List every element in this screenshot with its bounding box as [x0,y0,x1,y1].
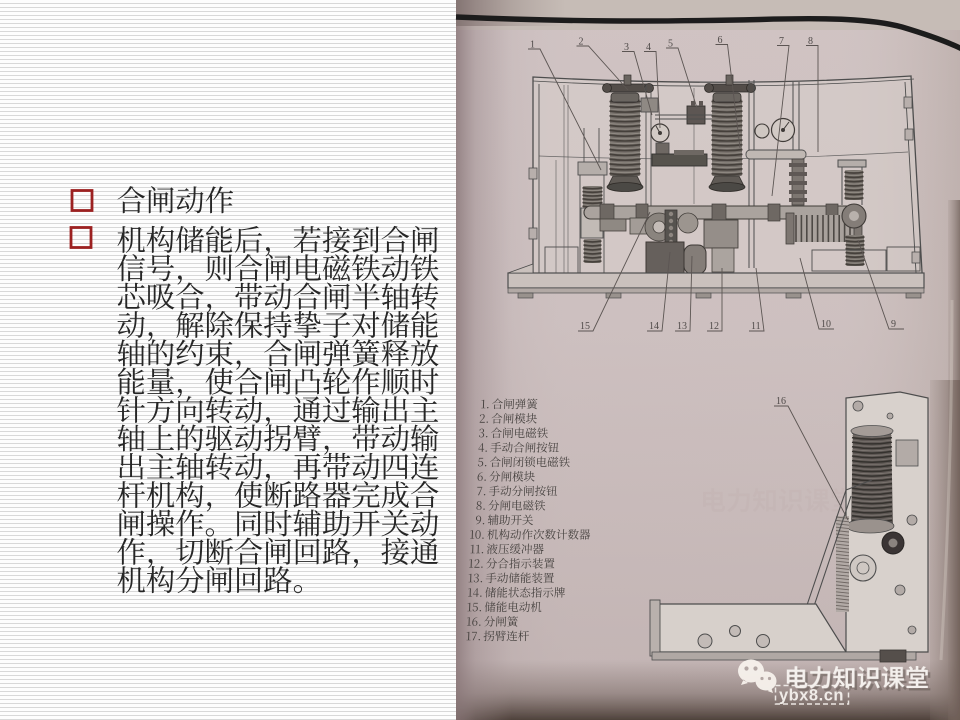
svg-text:16: 16 [776,396,786,407]
svg-text:15: 15 [580,321,590,332]
svg-text:13: 13 [677,321,687,332]
svg-text:14: 14 [649,321,659,332]
svg-text:ybx8.cn: ybx8.cn [779,687,844,705]
svg-text:9: 9 [891,319,896,330]
svg-text:10: 10 [821,319,831,330]
svg-text:11: 11 [751,321,761,332]
svg-text:12: 12 [709,321,719,332]
